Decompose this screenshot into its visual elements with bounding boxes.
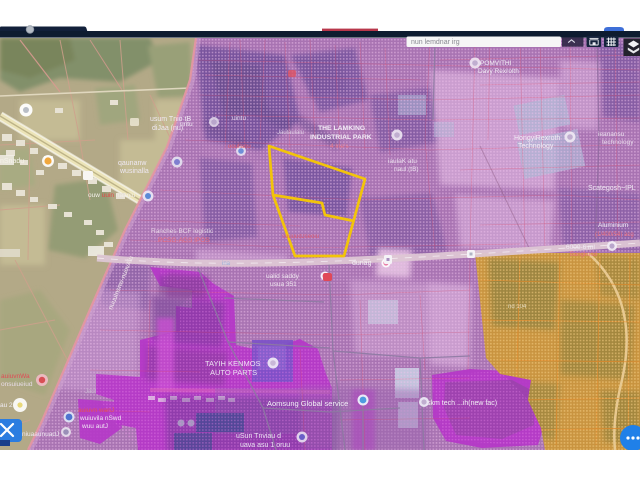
- svg-text:Scategosh~IPL: Scategosh~IPL: [588, 185, 636, 192]
- svg-text:suuuudJseoiu: suuuudJseoiu: [282, 234, 319, 240]
- svg-text:Bangkood: Bangkood: [570, 252, 597, 258]
- svg-text:ina: ina: [222, 261, 231, 267]
- svg-text:technology: technology: [602, 139, 634, 146]
- svg-text:uava asu 1 oruu: uava asu 1 oruu: [240, 442, 290, 449]
- svg-text:AUTO PARTS: AUTO PARTS: [210, 368, 257, 377]
- svg-text:uSun Tnviau d: uSun Tnviau d: [236, 433, 281, 440]
- svg-text:Jaul: Jaul: [85, 389, 96, 395]
- svg-text:Ranches BCF logistic: Ranches BCF logistic: [151, 228, 214, 235]
- svg-text:nritu: nritu: [180, 121, 193, 128]
- svg-text:diJaa (nu): diJaa (nu): [152, 125, 183, 132]
- svg-text:nun lemdnar irg: nun lemdnar irg: [411, 39, 460, 46]
- svg-text:au 2: au 2: [0, 402, 13, 409]
- svg-text:auiuvn wanJ: auiuvn wanJ: [78, 407, 114, 414]
- svg-text:nd 104: nd 104: [508, 304, 527, 310]
- svg-text:(1/400/54) acg: (1/400/54) acg: [595, 232, 634, 238]
- svg-text:THE LAMKING: THE LAMKING: [318, 125, 365, 132]
- svg-text:wuiuvila nSwd: wuiuvila nSwd: [79, 415, 122, 422]
- svg-text:uintu: uintu: [232, 115, 246, 122]
- svg-text:dunag: dunag: [352, 260, 372, 267]
- svg-text:TAYIH KENMOS: TAYIH KENMOS: [205, 359, 261, 368]
- svg-text:ooullaou .: ooullaou .: [228, 144, 254, 150]
- svg-text:Aluminium: Aluminium: [598, 222, 628, 229]
- svg-text:ieanansu: ieanansu: [598, 131, 625, 138]
- svg-text:ualid saddy: ualid saddy: [266, 273, 300, 280]
- svg-text:wuu autJ: wuu autJ: [81, 423, 108, 430]
- svg-text:Davy Rexrolth: Davy Rexrolth: [478, 68, 519, 75]
- svg-text:auiuvnWa: auiuvnWa: [1, 373, 30, 380]
- svg-text:6000-6 ml: 6000-6 ml: [566, 244, 595, 251]
- svg-text:naul (tB): naul (tB): [394, 166, 419, 173]
- svg-text:Technology: Technology: [518, 143, 554, 150]
- svg-text:4 lne's: 4 lne's: [330, 143, 349, 150]
- svg-text:Jaulaulalu: Jaulaulalu: [277, 130, 304, 136]
- svg-text:usua 351: usua 351: [270, 281, 297, 288]
- svg-text:ouw uuin naaniu: ouw uuin naaniu: [88, 192, 136, 199]
- svg-text:HongyiRexroth: HongyiRexroth: [514, 135, 560, 142]
- svg-text:INDUSTRIAL PARK: INDUSTRIAL PARK: [310, 134, 372, 141]
- svg-text:nSnadu: nSnadu: [0, 158, 24, 165]
- svg-text:onsuiueiud: onsuiueiud: [1, 381, 33, 388]
- svg-text:Aomsung Global service: Aomsung Global service: [267, 399, 348, 408]
- svg-text:PCSG-AGS IPOS: PCSG-AGS IPOS: [158, 237, 210, 244]
- svg-text:skm tech ...ih(new fac): skm tech ...ih(new fac): [427, 400, 497, 407]
- svg-text:iaulaK atu: iaulaK atu: [388, 158, 417, 165]
- svg-text:qaunanw: qaunanw: [118, 160, 147, 167]
- svg-text:wusinalla: wusinalla: [119, 168, 149, 175]
- svg-text:niuaaunuadJ: niuaaunuadJ: [22, 431, 59, 438]
- svg-text:POMVITHI: POMVITHI: [480, 60, 512, 67]
